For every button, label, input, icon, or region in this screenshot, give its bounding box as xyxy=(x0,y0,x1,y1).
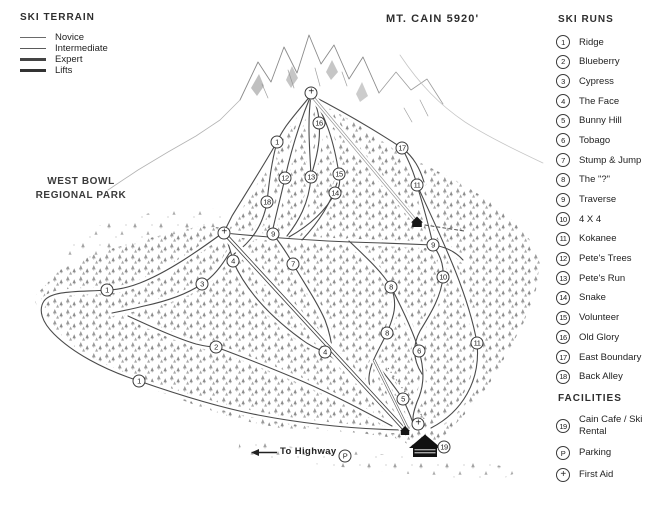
run-number-badge: 4 xyxy=(556,94,570,108)
list-item-label: Back Alley xyxy=(579,371,623,382)
list-item-label: Traverse xyxy=(579,194,616,205)
run-number-badge: 18 xyxy=(556,370,570,384)
parking-icon: P xyxy=(556,446,570,460)
list-item-label: Cain Cafe / Ski Rental xyxy=(579,414,650,439)
list-item-label: Pete's Run xyxy=(579,273,625,284)
park-label: WEST BOWL REGIONAL PARK xyxy=(31,175,131,202)
legend-item-label: Expert xyxy=(55,54,82,65)
facilities-header: FACILITIES xyxy=(558,393,650,404)
legend-line-sample xyxy=(20,69,46,72)
run-number-badge: 14 xyxy=(556,291,570,305)
list-item: 2Blueberry xyxy=(556,55,650,69)
park-label-line1: WEST BOWL xyxy=(31,175,131,189)
list-item: 6Tobago xyxy=(556,133,650,147)
legend-item-label: Intermediate xyxy=(55,43,108,54)
list-item-label: Stump & Jump xyxy=(579,155,641,166)
list-item-label: Snake xyxy=(579,292,606,303)
legend-line-sample xyxy=(20,48,46,50)
terrain-illustration xyxy=(0,0,650,508)
list-item-label: Bunny Hill xyxy=(579,115,622,126)
list-item: 3Cypress xyxy=(556,74,650,88)
run-number-badge: 17 xyxy=(556,350,570,364)
run-number-badge: 13 xyxy=(556,271,570,285)
list-item-label: Volunteer xyxy=(579,312,619,323)
run-number-badge: 6 xyxy=(556,133,570,147)
run-number-badge: 8 xyxy=(556,173,570,187)
terrain-legend: SKI TERRAIN NoviceIntermediateExpertLift… xyxy=(20,12,108,76)
legend-item-expert: Expert xyxy=(20,54,108,65)
list-item: PParking xyxy=(556,446,650,460)
list-item: 17East Boundary xyxy=(556,350,650,364)
run-number-badge: 19 xyxy=(556,419,570,433)
list-item: 18Back Alley xyxy=(556,370,650,384)
list-item-label: Tobago xyxy=(579,135,610,146)
list-item-label: The "?" xyxy=(579,174,610,185)
list-item: +First Aid xyxy=(556,468,650,482)
legend-line-sample xyxy=(20,37,46,38)
legend-item-label: Lifts xyxy=(55,65,72,76)
list-item-label: Ridge xyxy=(579,37,604,48)
to-highway-label: To Highway xyxy=(280,446,337,457)
ski-runs-list: 1Ridge2Blueberry3Cypress4The Face5Bunny … xyxy=(556,35,650,384)
list-item-label: Parking xyxy=(579,447,611,459)
run-number-badge: 15 xyxy=(556,311,570,325)
list-item: 8The "?" xyxy=(556,173,650,187)
list-item: 13Pete's Run xyxy=(556,271,650,285)
list-item: 12Pete's Trees xyxy=(556,252,650,266)
ski-runs-header: SKI RUNS xyxy=(558,14,650,25)
legend-item-novice: Novice xyxy=(20,32,108,43)
legend-item-label: Novice xyxy=(55,32,84,43)
legend-line-sample xyxy=(20,58,46,60)
run-number-badge: 7 xyxy=(556,153,570,167)
legend-title: SKI TERRAIN xyxy=(20,12,108,23)
list-item-label: First Aid xyxy=(579,469,613,481)
list-item-label: Old Glory xyxy=(579,332,619,343)
list-item: 15Volunteer xyxy=(556,311,650,325)
list-item: 104 X 4 xyxy=(556,212,650,226)
run-number-badge: 16 xyxy=(556,330,570,344)
list-item: 14Snake xyxy=(556,291,650,305)
run-number-badge: 2 xyxy=(556,55,570,69)
list-item-label: East Boundary xyxy=(579,352,641,363)
list-item-label: Kokanee xyxy=(579,233,617,244)
list-item-label: Pete's Trees xyxy=(579,253,632,264)
run-number-badge: 9 xyxy=(556,193,570,207)
list-item: 4The Face xyxy=(556,94,650,108)
list-item: 9Traverse xyxy=(556,193,650,207)
ski-runs-panel: SKI RUNS 1Ridge2Blueberry3Cypress4The Fa… xyxy=(556,14,650,490)
list-item-label: Cypress xyxy=(579,76,614,87)
run-number-badge: 3 xyxy=(556,74,570,88)
trail-map: +16117151312111418+99471038181126415+19P… xyxy=(0,0,650,508)
run-number-badge: 1 xyxy=(556,35,570,49)
facilities-list: 19Cain Cafe / Ski RentalPParking+First A… xyxy=(556,414,650,483)
map-title: MT. CAIN 5920' xyxy=(386,13,479,25)
list-item: 11Kokanee xyxy=(556,232,650,246)
first-aid-icon: + xyxy=(556,468,570,482)
list-item-label: Blueberry xyxy=(579,56,620,67)
list-item: 19Cain Cafe / Ski Rental xyxy=(556,414,650,439)
list-item: 1Ridge xyxy=(556,35,650,49)
legend-items: NoviceIntermediateExpertLifts xyxy=(20,32,108,76)
list-item: 7Stump & Jump xyxy=(556,153,650,167)
legend-item-intermediate: Intermediate xyxy=(20,43,108,54)
list-item-label: 4 X 4 xyxy=(579,214,601,225)
run-number-badge: 12 xyxy=(556,252,570,266)
run-number-badge: 11 xyxy=(556,232,570,246)
list-item: 5Bunny Hill xyxy=(556,114,650,128)
run-number-badge: 5 xyxy=(556,114,570,128)
run-number-badge: 10 xyxy=(556,212,570,226)
list-item: 16Old Glory xyxy=(556,330,650,344)
list-item-label: The Face xyxy=(579,96,619,107)
park-label-line2: REGIONAL PARK xyxy=(31,189,131,203)
legend-item-lifts: Lifts xyxy=(20,65,108,76)
